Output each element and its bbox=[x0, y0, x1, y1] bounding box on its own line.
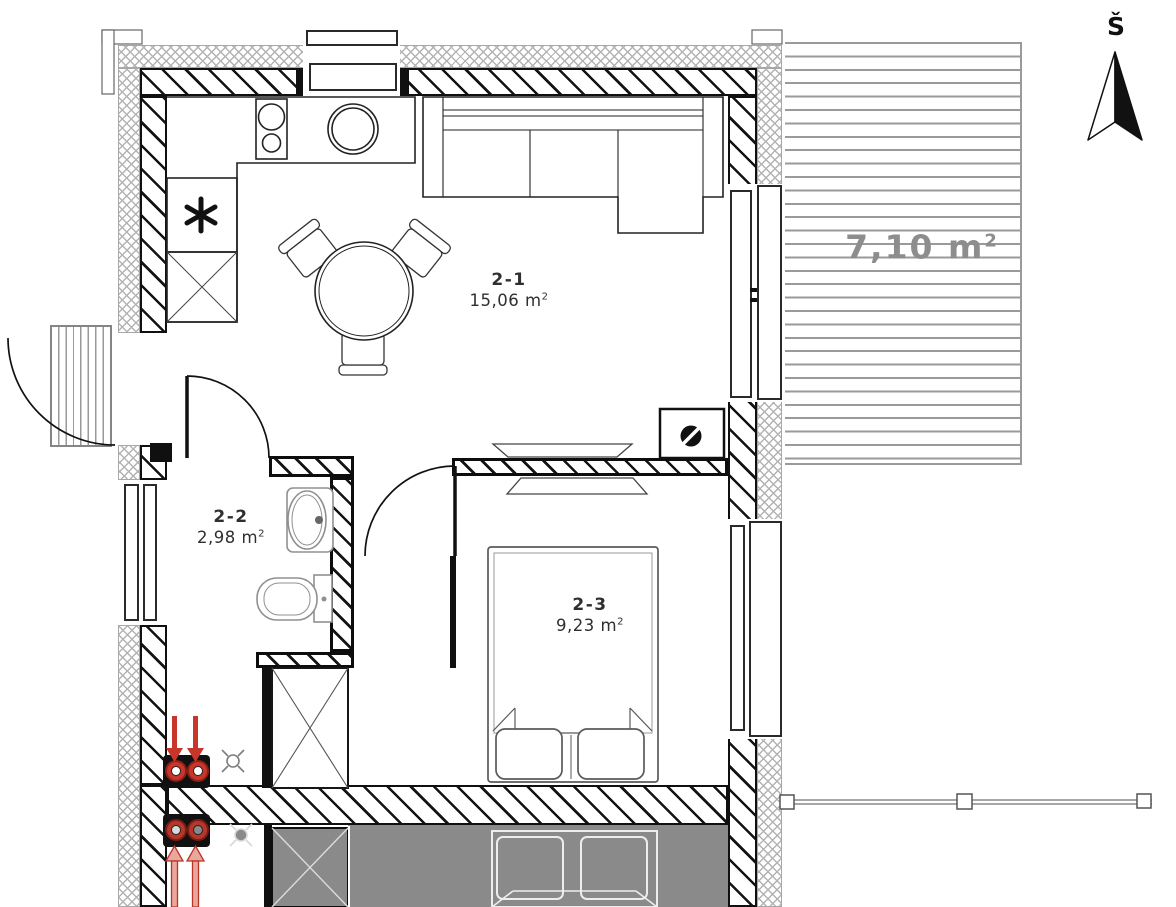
pipe-arrow-shaft bbox=[172, 716, 177, 748]
pipe-arrow-shaft bbox=[172, 861, 178, 907]
pipe-arrow-shaft bbox=[193, 861, 199, 907]
sliding-panel-upper bbox=[493, 444, 632, 457]
sliding-panels bbox=[493, 444, 647, 494]
room-2-2-area: 2,98 m2 bbox=[197, 528, 265, 547]
kitchen-sink-inner bbox=[332, 108, 374, 150]
trim-topright bbox=[752, 30, 782, 44]
sofa bbox=[423, 97, 723, 233]
fence-post bbox=[780, 795, 794, 809]
floor-plan: Š 2-1 15,06 m2 2-2 2,98 m2 2-3 9,23 m2 7… bbox=[0, 0, 1176, 907]
room-2-3-area: 9,23 m2 bbox=[556, 616, 624, 635]
room-2-3-label: 2-3 9,23 m2 bbox=[556, 595, 624, 637]
terrace-area-label: 7,10 m2 bbox=[845, 228, 999, 267]
room-2-1-id: 2-1 bbox=[470, 270, 549, 291]
heating-riser-neighbor bbox=[163, 814, 210, 907]
boiler-asterisk-icon bbox=[187, 199, 215, 231]
room-2-1-label: 2-1 15,06 m2 bbox=[470, 270, 549, 312]
north-arrow-icon bbox=[1088, 52, 1142, 140]
vent-icon bbox=[222, 750, 244, 772]
pillow-right bbox=[578, 729, 644, 779]
neighbor-pillow bbox=[497, 837, 563, 899]
plan-linework bbox=[0, 0, 1176, 907]
crossed-box-x bbox=[167, 252, 237, 322]
sliding-panel-lower bbox=[507, 478, 647, 494]
toilet-bowl-icon bbox=[257, 578, 317, 620]
bathroom-door-arc bbox=[187, 376, 269, 458]
dining-set bbox=[277, 218, 452, 375]
room-2-1-area: 15,06 m2 bbox=[470, 291, 549, 310]
electrical-box-icon bbox=[660, 409, 724, 458]
pillow-left bbox=[496, 729, 562, 779]
toilet-flush-dot bbox=[322, 597, 327, 602]
faucet-icon bbox=[315, 516, 323, 524]
neighbor-pillow bbox=[581, 837, 647, 899]
heating-riser-apartment bbox=[163, 716, 210, 788]
compass-label: Š bbox=[1107, 12, 1125, 41]
sofa-outline bbox=[423, 97, 723, 233]
pipe-arrow-up bbox=[166, 846, 183, 861]
kitchen-sink-icon bbox=[328, 104, 378, 154]
room-2-2-id: 2-2 bbox=[197, 507, 265, 528]
burner-small bbox=[263, 134, 281, 152]
vent-icon-neighbor bbox=[230, 824, 252, 846]
stove bbox=[256, 99, 287, 159]
bed bbox=[488, 547, 658, 782]
pipe-arrow-shaft bbox=[193, 716, 198, 748]
room-2-2-label: 2-2 2,98 m2 bbox=[197, 507, 265, 549]
burner-large bbox=[259, 104, 285, 130]
fence bbox=[780, 794, 1152, 809]
fence-post bbox=[957, 794, 972, 809]
neighbor-furniture bbox=[272, 826, 657, 907]
pipe-arrow-up bbox=[187, 846, 204, 861]
room-2-3-id: 2-3 bbox=[556, 595, 624, 616]
dining-table bbox=[315, 242, 413, 340]
trim-topleft-b bbox=[102, 30, 114, 94]
entrance-door-arc bbox=[8, 338, 115, 445]
bathroom-fixtures bbox=[257, 488, 333, 622]
bedroom-door-arc bbox=[365, 466, 455, 556]
exterior-trim bbox=[102, 30, 782, 94]
fence-post bbox=[1137, 794, 1151, 808]
bedroom-wardrobe bbox=[272, 668, 348, 788]
